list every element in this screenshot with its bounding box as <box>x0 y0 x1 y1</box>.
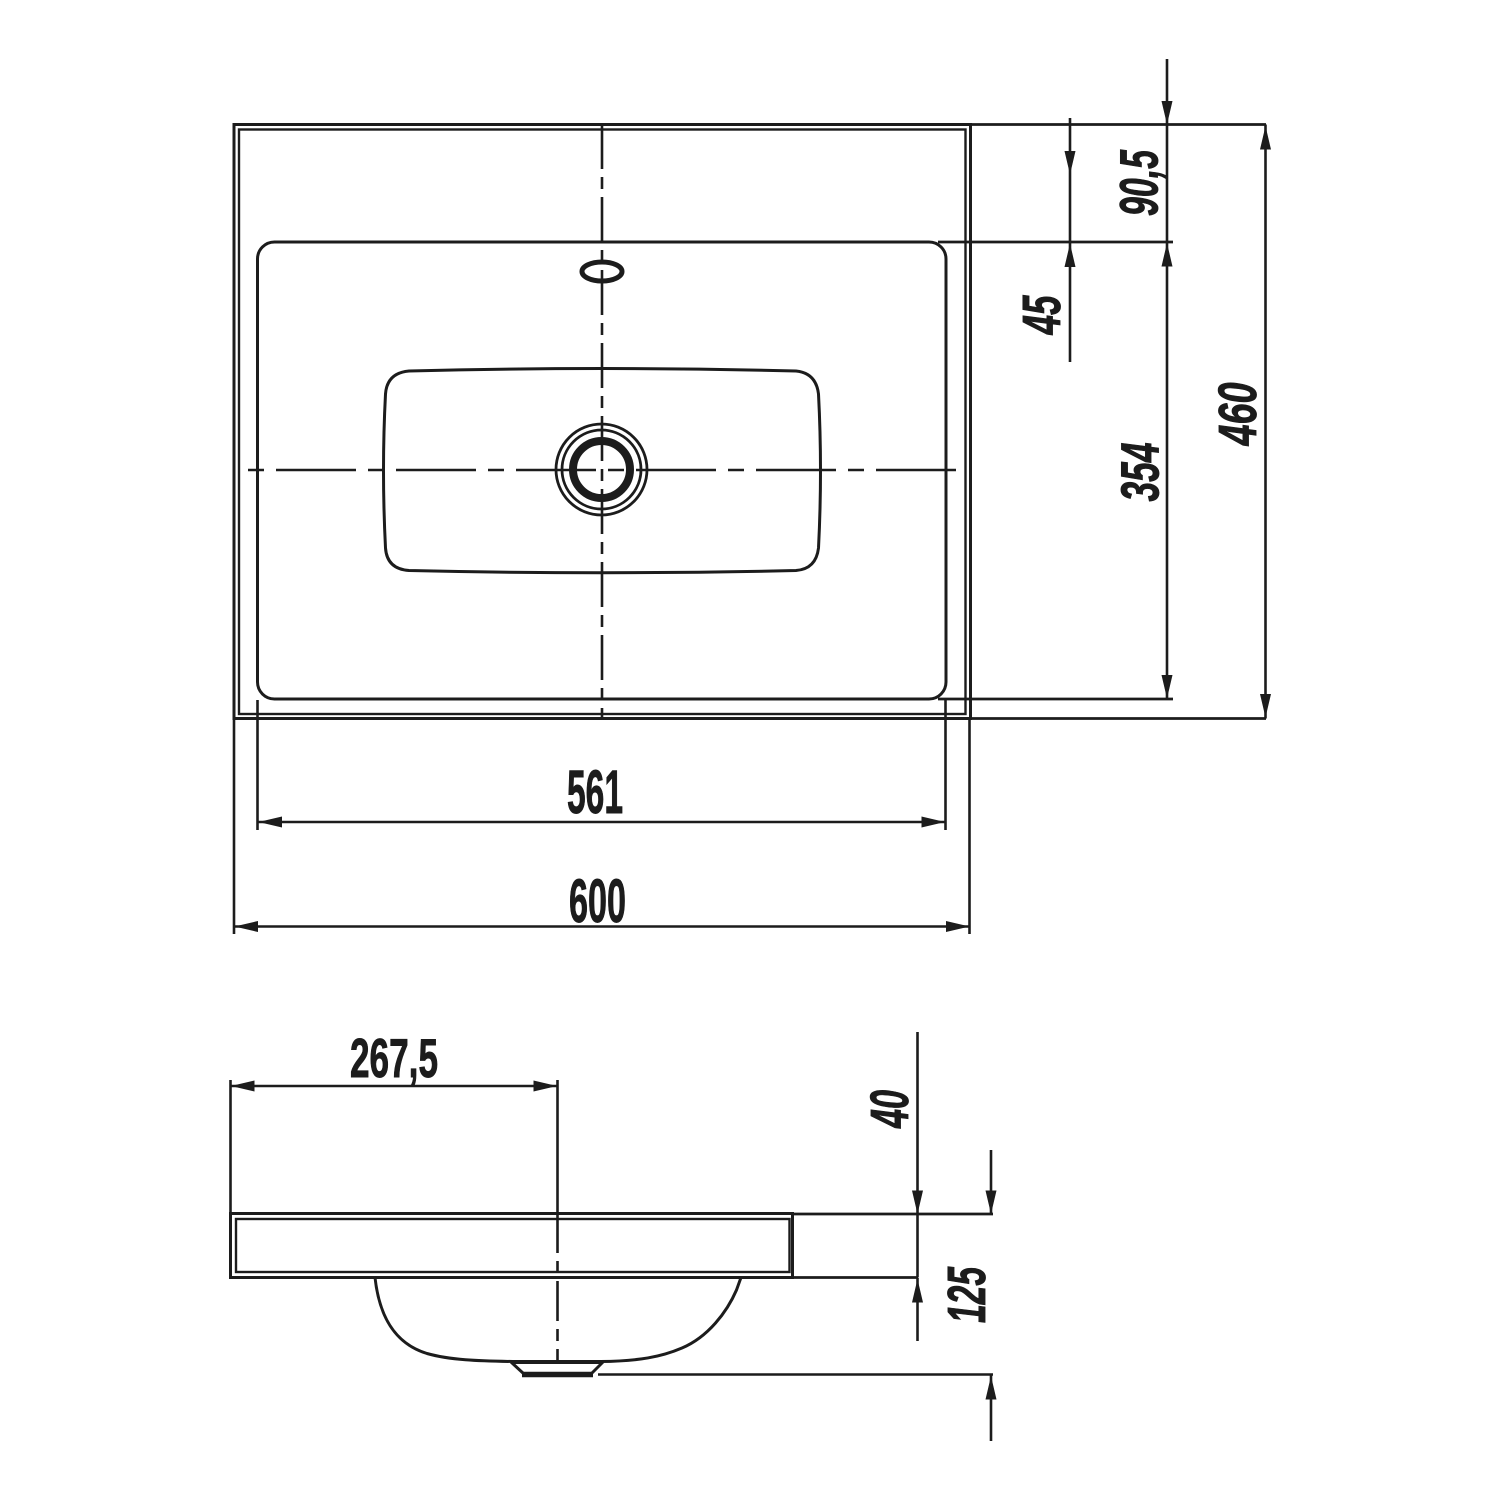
svg-text:40: 40 <box>860 1090 920 1129</box>
svg-text:600: 600 <box>569 867 626 935</box>
svg-text:561: 561 <box>567 758 623 826</box>
svg-text:267,5: 267,5 <box>350 1027 438 1089</box>
svg-text:460: 460 <box>1208 383 1268 447</box>
svg-text:125: 125 <box>937 1266 997 1323</box>
svg-text:90,5: 90,5 <box>1110 149 1170 216</box>
svg-text:45: 45 <box>1012 295 1072 335</box>
svg-text:354: 354 <box>1111 443 1171 502</box>
